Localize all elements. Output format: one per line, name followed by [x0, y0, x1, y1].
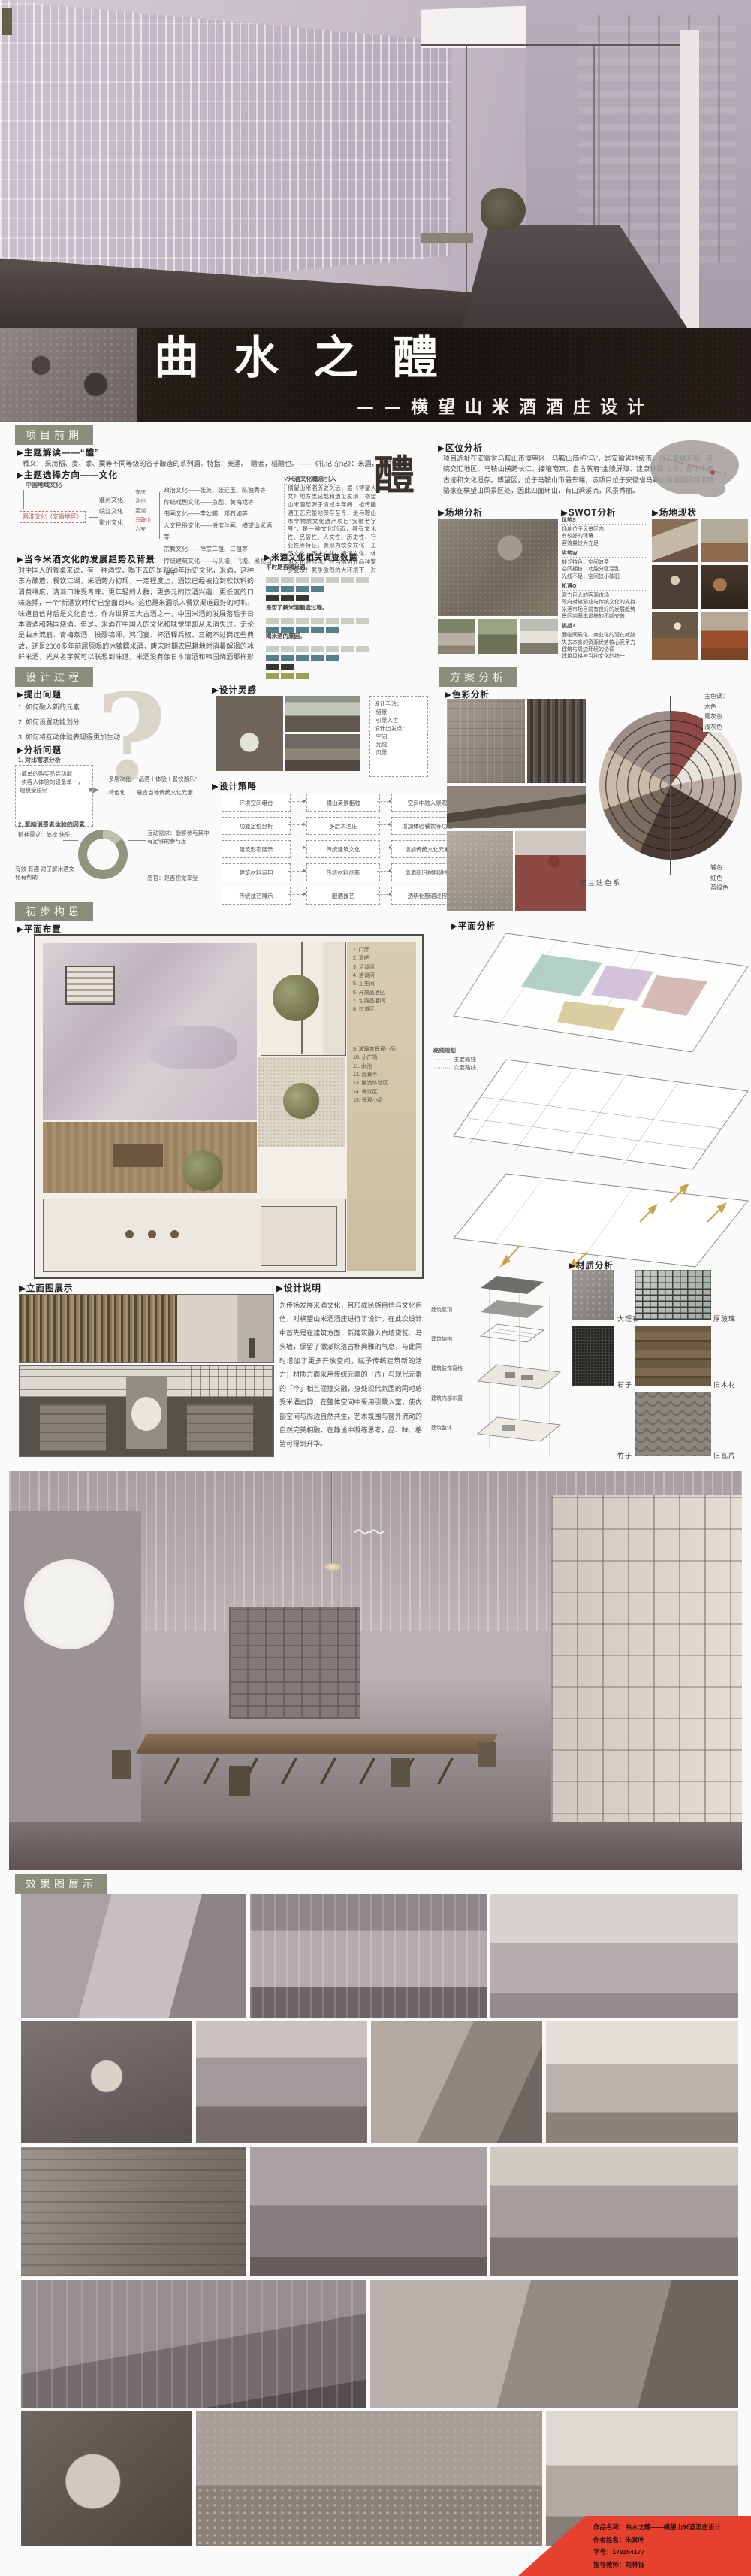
donut-callout-line-left	[63, 840, 78, 841]
section-header-concept: 初步构思	[15, 902, 93, 921]
window-frame-vertical	[466, 44, 467, 292]
survey-question-label: 喝米酒的原因。	[266, 632, 375, 640]
factor-donut-chart	[78, 830, 128, 879]
main-render-image: 〜〜	[9, 1471, 742, 1870]
render-chair	[229, 1766, 250, 1796]
strategy-arrow	[288, 848, 303, 848]
inspiration-heading: ▶设计灵感	[212, 684, 257, 696]
tree-city: 六安	[135, 525, 151, 534]
site-photo-2	[478, 619, 517, 654]
plan-furniture-dot	[170, 1230, 179, 1238]
tree-region: 两淮文化（安徽地区）	[20, 511, 86, 523]
status-photo	[701, 565, 748, 609]
section-header-project: 项目前期	[15, 425, 93, 445]
palette-main: 主色调： 木色 青灰色 浅灰色	[703, 691, 730, 732]
analysis-sub1: 1. 对比需求分析	[18, 756, 61, 765]
axon-flow-diagram	[452, 1172, 749, 1268]
tree-city: 安庆	[135, 488, 151, 497]
swot-items: 潜力巨大的客源市场 政府对旅游业与传统文化的支持 米酒市场目前有良好的发展趋势 …	[562, 592, 647, 620]
swot-key: 劣势W	[562, 550, 647, 558]
plan-legend-9-15: 9. 玻璃盒景观小品 10. 小广场 11. 水池 12. 观景亭 13. 酿造…	[353, 1045, 415, 1105]
arrow-icon: ■▶	[89, 786, 99, 794]
render-thumbnail	[490, 1894, 738, 2018]
needs-box-current: ·简单的购买品尝功能 ·供客人体验的设备单一，规模受限制	[15, 765, 93, 827]
map-site-dot	[710, 470, 715, 475]
survey-bar-block	[341, 646, 354, 652]
survey-bar-block	[296, 673, 309, 679]
color-wheel	[599, 711, 742, 860]
status-photo	[701, 612, 748, 660]
survey-bar-row	[266, 614, 375, 621]
strategy-a: 环境空间组合	[222, 794, 291, 812]
section-header-scheme: 方案分析	[439, 667, 517, 687]
render-floor	[9, 1822, 742, 1870]
wheel-axis-vertical	[670, 696, 671, 875]
plan-furniture-dot	[148, 1230, 156, 1238]
render-wave-logo: 〜〜	[354, 1519, 406, 1537]
swot-items: 面临同质化、商业化的潜在威胁 失去本身的资源优势核心竞争力 建筑与周边环境的协调…	[562, 632, 647, 660]
strategy-a: 建筑材料运用	[222, 863, 291, 881]
render-thumbnail	[370, 2280, 738, 2408]
render-thumbnail	[21, 2411, 192, 2546]
render-thumbnail	[250, 2147, 487, 2276]
corner-mark	[2, 8, 12, 35]
material-swatch-bamboo	[572, 1392, 614, 1456]
intro-heading: ∵米酒文化概念引入	[284, 475, 336, 485]
material-swatch-gravel	[572, 1326, 614, 1386]
survey-bar-block	[356, 618, 369, 624]
status-photo	[652, 612, 698, 660]
elevation-strip-2	[19, 1365, 274, 1457]
material-label: 旧瓦片	[713, 1450, 736, 1460]
strategy-b: 传统建筑文化	[306, 840, 380, 858]
tree-line-v2	[159, 492, 160, 539]
survey-bar-row	[266, 642, 375, 650]
material-label: 厚玻璃	[713, 1314, 736, 1323]
strategy-b: 传统材料创新	[306, 863, 380, 881]
color-ref-photo-stone	[447, 831, 513, 911]
needs-box-goal: ·多层次化 “品酒＋体验＋餐饮游乐” ·特色化 融合当地传统文化元素	[107, 772, 216, 800]
render-thumbnail	[21, 2021, 192, 2143]
donut-label-effect: 有效 有趣 对了解米酒文化有帮助	[15, 866, 80, 882]
material-label: 竹子	[617, 1450, 632, 1460]
plan-legend-1-8: 1. 门厅 2. 清吧 3. 洽谈间 4. 洽谈间 5. 卫生间 6. 开放品酒…	[353, 946, 415, 1014]
material-label: 旧木材	[713, 1380, 736, 1389]
survey-bar-block	[341, 618, 354, 624]
elevation-shelf-left	[40, 1404, 106, 1450]
donut-label-sense: 感官：是否视觉享受	[147, 875, 216, 883]
strategy-a: 传统技艺展示	[222, 887, 291, 905]
plan-tree	[283, 1083, 319, 1119]
render-thumbnail	[21, 1894, 246, 2018]
survey-bar-block	[326, 577, 339, 583]
strategy-arrow	[377, 801, 389, 802]
material-swatch-marble	[572, 1270, 614, 1320]
render-glass-wall-right	[551, 1495, 742, 1846]
plan-tree	[182, 1150, 223, 1191]
tree-city: 池州	[135, 497, 151, 506]
strategy-a: 建筑形态展示	[222, 840, 291, 858]
render-thumbnail	[21, 2280, 366, 2408]
elevation-shelf-right	[187, 1404, 253, 1450]
floor-plan-image: 1. 门厅 2. 清吧 3. 洽谈间 4. 洽谈间 5. 卫生间 6. 开放品酒…	[34, 934, 424, 1279]
elevation-heading: ▶立面图展示	[19, 1282, 73, 1294]
status-photo	[701, 519, 748, 562]
plant-silhouette	[481, 188, 526, 231]
donut-label-interact: 互动需求：能够参与其中 有足够的参与度	[147, 830, 216, 846]
plan-deck-table	[113, 1144, 163, 1167]
render-pendant-glow	[324, 1563, 341, 1571]
china-map	[647, 437, 746, 500]
site-photo-3	[520, 619, 558, 654]
inspiration-note: 设计手法： ·借景 ·引景入世 设计出发点： ·空间 ·光线 ·风景	[369, 696, 428, 777]
strategy-arrow	[377, 824, 389, 825]
swot-key: 机遇O	[562, 583, 647, 591]
map-shape-south	[695, 481, 725, 497]
window-frame-horizontal	[421, 44, 683, 46]
theme-heading: ▶主题解读——“醴”	[17, 446, 100, 458]
tree-city: 马鞍山	[135, 516, 151, 525]
material-swatch-oldwood	[635, 1326, 711, 1386]
plan-water-pond	[148, 1026, 237, 1069]
tree-line-h1	[89, 517, 98, 518]
render-chair	[112, 1750, 131, 1779]
wheel-axis-horizontal	[584, 785, 751, 785]
swot-list: 优势S 场地位于风景区内 有较好的环境 客流量较为充足 劣势W 缺乏特色，空间浪…	[562, 517, 647, 660]
poster-subtitle: ——横望山米酒酒庄设计	[357, 392, 654, 418]
survey-bar-block	[311, 655, 324, 661]
title-band: 曲水之醴 ——横望山米酒酒庄设计	[0, 328, 751, 422]
survey-bar-block	[356, 577, 369, 583]
palette-aux: 辅色： 红色 蓝绿色	[709, 863, 730, 893]
survey-question-label: 平时是否喝米酒。	[266, 563, 375, 571]
route-legend-title: 路线规划	[432, 1046, 457, 1056]
donut-label-spirit: 精神需求：放松 快乐	[18, 831, 74, 839]
map-shape	[650, 440, 739, 494]
color-ref-photo-eave	[447, 786, 586, 828]
strategy-a: 功能定位分析	[222, 817, 291, 835]
survey-chart-q1: 平时是否喝米酒。	[266, 559, 375, 600]
render-table-legs	[164, 1758, 470, 1784]
strategy-arrow	[288, 801, 303, 802]
tree-city: 芜湖	[135, 507, 151, 516]
render-thumbnail	[490, 2147, 738, 2276]
credit-student-id: 学号：179154177	[593, 2546, 721, 2559]
strategy-b: 多层次酒庄	[306, 817, 380, 835]
trend-heading: ▶当今米酒文化的发展趋势及背景	[17, 553, 155, 565]
palette-caption: 莫兰迪色系	[580, 878, 621, 888]
elevation-strip-1	[19, 1294, 274, 1363]
render-long-table	[136, 1734, 498, 1754]
section-header-renders: 效果图展示	[15, 1874, 107, 1894]
color-ref-photo-concrete	[447, 699, 525, 783]
strategy-arrow	[288, 871, 303, 872]
aerial-photo	[438, 519, 558, 616]
glass-brick-wall	[0, 0, 451, 298]
white-pillar	[680, 30, 699, 328]
elevation-figure	[249, 1338, 255, 1358]
survey-chart-q3: 喝米酒的原因。	[266, 628, 375, 679]
credit-advisor: 指导教师：刘林钰	[593, 2559, 721, 2571]
survey-bar-block	[296, 655, 309, 661]
survey-bar-row	[266, 573, 375, 581]
swot-items: 缺乏特色，空间浪费 空间拥挤，功能分区混乱 光线不足，空间狭小破旧	[562, 559, 647, 580]
donut-callout-line-right	[128, 840, 146, 841]
donut-hole	[87, 839, 119, 870]
pebble-photo-strip	[0, 328, 137, 422]
swot-items: 场地位于风景区内 有较好的环境 客流量较为充足	[562, 526, 647, 547]
li-seal-glyph: 醴	[374, 442, 415, 501]
inspiration-image-2	[285, 696, 360, 732]
survey-bar-row	[266, 591, 375, 599]
credit-text: 作品名称：曲水之醴——横望山米酒酒庄设计 作者姓名：朱赏叶 学号：1791541…	[593, 2521, 721, 2571]
render-back-shelves	[229, 1607, 361, 1718]
swot-key: 挑战T	[562, 623, 647, 630]
color-ref-photo-redwall	[515, 831, 586, 911]
questions-heading: ▶提出问题	[17, 688, 62, 700]
status-photo	[652, 565, 698, 609]
survey-bar-row	[266, 670, 375, 677]
swot-key: 优势S	[562, 517, 647, 525]
strategy-b: 酿酒技艺	[306, 887, 380, 905]
plan-layout-heading: ▶平面布置	[17, 923, 62, 935]
tree-cities: 安庆 池州 芜湖 马鞍山 六安	[135, 488, 151, 534]
render-thumbnail	[21, 2147, 246, 2276]
credit-work-title: 作品名称：曲水之醴——横望山米酒酒庄设计	[593, 2521, 721, 2534]
analysis-heading: ▶分析问题	[17, 744, 62, 756]
site-photo-1	[438, 619, 475, 654]
status-heading: ▶场地现状	[652, 506, 697, 519]
material-swatch-oldtile	[635, 1392, 711, 1456]
tree-line-v1	[23, 490, 24, 509]
inspiration-image-3	[285, 734, 360, 771]
render-chair	[478, 1742, 496, 1767]
survey-bar-block	[326, 655, 339, 661]
strategy-arrow	[377, 894, 389, 895]
strategy-arrow	[377, 848, 389, 848]
poster: 曲水之醴 ——横望山米酒酒庄设计 项目前期 ▶主题解读——“醴” 释义： 采用稻…	[0, 0, 751, 2576]
analysis-sub2: 2. 影响消费者体验的因素	[18, 821, 85, 830]
survey-bar-row	[266, 661, 375, 668]
render-moon-window	[24, 1559, 114, 1649]
material-swatch-glass	[635, 1270, 711, 1320]
render-thumbnail	[546, 2021, 738, 2143]
render-pendant-light	[331, 1471, 332, 1567]
section-header-process: 设计过程	[15, 667, 93, 687]
axon-function-diagram	[452, 932, 749, 1054]
poster-title: 曲水之醴	[154, 322, 472, 387]
plan-stage-room	[65, 966, 115, 1005]
plan-analysis-heading: ▶平面分析	[451, 920, 496, 932]
tree-root: 中国地域文化	[26, 481, 62, 490]
plan-tatami-room	[261, 1206, 337, 1266]
survey-question-label: 是否了解米酒酿造过程。	[266, 603, 375, 612]
plan-furniture-dot	[125, 1230, 134, 1238]
survey-bar-block	[356, 646, 369, 652]
survey-bar-block	[341, 577, 354, 583]
site-heading: ▶场地分析	[438, 506, 483, 519]
tree-cultures: 淮河文化 皖江文化 徽州文化	[99, 494, 123, 529]
survey-bar-row	[266, 652, 375, 659]
bench	[421, 233, 473, 243]
survey-bar-row	[266, 582, 375, 590]
strategy-arrow	[288, 894, 303, 895]
strategy-heading: ▶设计策略	[212, 780, 257, 792]
render-thumbnail	[196, 2021, 367, 2143]
material-label: 石子	[617, 1380, 632, 1389]
survey-bar-block	[311, 586, 324, 592]
structure-exploded-labels: 建筑屋顶 建筑结构 建筑装饰窗格 建筑内部布置 建筑整体	[431, 1296, 463, 1443]
credit-author: 作者姓名：朱赏叶	[593, 2534, 721, 2547]
direction-heading: ▶主题选择方向——文化	[17, 469, 118, 481]
color-ref-photo-bark	[527, 699, 586, 783]
plan-tree	[273, 975, 319, 1021]
axon-structure-diagram	[452, 1058, 749, 1171]
structure-exploded-diagram	[475, 1274, 566, 1461]
strategy-arrow	[377, 871, 389, 872]
inspiration-image-1	[216, 696, 283, 771]
render-thumbnail	[250, 1894, 487, 2018]
trend-paragraph: 对中国人的餐桌来说，有一种酒饮，喝下去的是7000年历史文化，米酒，这种东方酿造…	[18, 565, 254, 660]
strategy-arrow	[288, 824, 303, 825]
status-photo	[652, 519, 698, 562]
survey-bar-block	[266, 673, 279, 679]
render-thumbnail	[196, 2411, 542, 2546]
survey-chart-q2: 是否了解米酒酿造过程。	[266, 600, 375, 632]
survey-bar-block	[281, 673, 294, 679]
hero-render-image	[0, 0, 751, 328]
description-paragraph: 为传扬发展米酒文化，且形成民族自信与文化自信，对横望山米酒酒庄进行了设计。在此次…	[279, 1299, 422, 1458]
description-heading: ▶设计说明	[276, 1282, 321, 1294]
render-chair	[391, 1758, 410, 1787]
render-thumbnail	[371, 2021, 542, 2143]
elevation-slats	[20, 1295, 177, 1362]
strategy-b: 横山美景相融	[306, 794, 380, 812]
location-heading: ▶区位分析	[438, 442, 483, 454]
